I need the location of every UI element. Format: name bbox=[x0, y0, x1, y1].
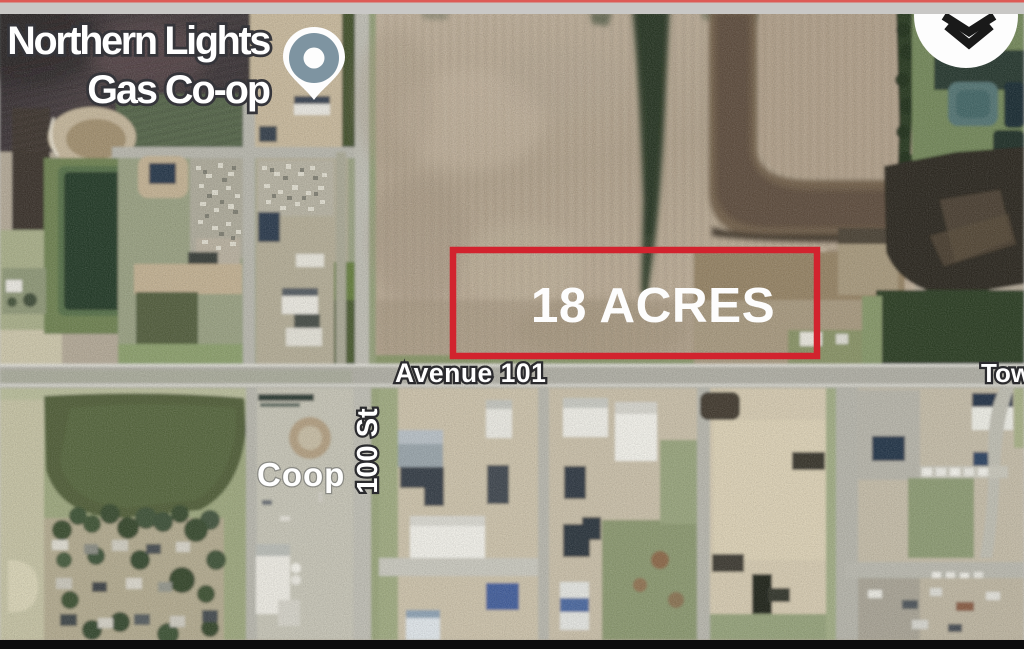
svg-text:18 ACRES: 18 ACRES bbox=[531, 278, 775, 333]
svg-text:Coop: Coop bbox=[257, 456, 345, 493]
svg-text:Northern Lights: Northern Lights bbox=[7, 19, 270, 63]
svg-text:Avenue 101: Avenue 101 bbox=[395, 358, 546, 388]
svg-text:Gas Co-op: Gas Co-op bbox=[87, 68, 270, 112]
svg-text:100 St: 100 St bbox=[352, 408, 384, 494]
svg-text:Tow: Tow bbox=[981, 358, 1024, 388]
